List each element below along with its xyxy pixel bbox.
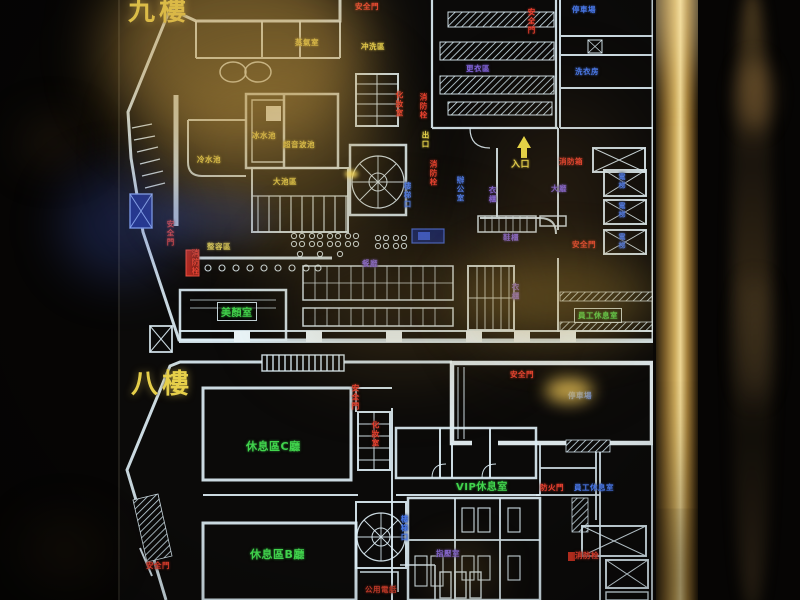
map-label-blue: 停車場 — [572, 4, 596, 15]
map-label-red: 消防栓 — [575, 550, 599, 561]
map-label-red: 安全門 — [146, 560, 170, 571]
map-label-green: 休息區B廳 — [250, 546, 305, 562]
map-label-purple: 餐廳 — [362, 258, 378, 269]
map-label-blue: 電梯 — [617, 233, 627, 250]
map-label-yellow: 整容區 — [207, 241, 231, 252]
map-label-yellow: 超音波池 — [283, 139, 315, 150]
map-label-darkred: 公用電話 — [365, 584, 397, 595]
map-label-red: 安全門 — [572, 239, 596, 250]
map-label-purple: 指壓室 — [436, 548, 460, 559]
map-label-yellow: 大池區 — [273, 176, 297, 187]
map-label-yellow: 冲洗區 — [361, 41, 385, 52]
map-label-red: 安全門 — [350, 384, 361, 411]
map-label-blue: 樓梯口 — [402, 182, 413, 209]
reflection-streak — [732, 0, 772, 600]
gold-frame — [656, 0, 698, 600]
map-label-yellow: 冰水池 — [252, 130, 276, 141]
map-label-green: 員工休息室 — [574, 308, 622, 323]
map-label-red: 消防箱 — [559, 156, 583, 167]
map-label-blue: 辦公室 — [455, 176, 466, 203]
map-label-red: 安全門 — [165, 220, 176, 247]
map-label-yellow: 冷水池 — [197, 154, 221, 165]
map-label-red: 安全門 — [355, 1, 379, 12]
map-label-purple: 更衣區 — [466, 63, 490, 74]
map-label-red: 化妝室 — [394, 91, 405, 118]
map-label-yellow: 蒸氣室 — [295, 37, 319, 48]
map-label-red: 消防栓 — [190, 249, 201, 276]
map-label-purple: 衣櫃 — [510, 283, 521, 301]
map-label-blue: 樓梯口 — [399, 515, 410, 542]
map-label-red: 消防栓 — [418, 93, 429, 120]
map-label-red: 消防栓 — [428, 160, 439, 187]
map-label-red: 安全門 — [526, 8, 537, 35]
floor-9-linework — [128, 0, 653, 352]
map-label-red: 化妝室 — [370, 421, 381, 448]
map-label-yellow: 入口 — [511, 157, 530, 170]
map-label-blue: 電梯 — [617, 202, 627, 219]
background-right — [698, 0, 800, 600]
map-label-blue: 停車場 — [568, 390, 592, 401]
map-label-blue: 洗衣房 — [575, 66, 599, 77]
map-label-green: 休息區C廳 — [246, 438, 301, 454]
map-label-purple: 大廳 — [551, 183, 567, 194]
map-label-blue: 員工休息室 — [574, 482, 614, 493]
photo-scene: 九樓 八樓 安全門安全門蒸氣室冲洗區停車場洗衣房更衣區冷水池冰水池超音波池大池區… — [0, 0, 800, 600]
map-label-purple: 衣櫃 — [487, 186, 498, 204]
map-label-green: VIP休息室 — [456, 478, 508, 493]
map-label-yellow: 出口 — [420, 131, 431, 149]
map-label-red: 防火門 — [540, 482, 564, 493]
map-label-blue: 電梯 — [617, 173, 627, 190]
map-label-purple: 鞋櫃 — [503, 232, 519, 243]
floor-8-title: 八樓 — [131, 362, 193, 401]
floor-9-title: 九樓 — [128, 0, 190, 28]
map-label-red: 安全門 — [510, 369, 534, 380]
map-label-green: 美顏室 — [217, 302, 257, 321]
